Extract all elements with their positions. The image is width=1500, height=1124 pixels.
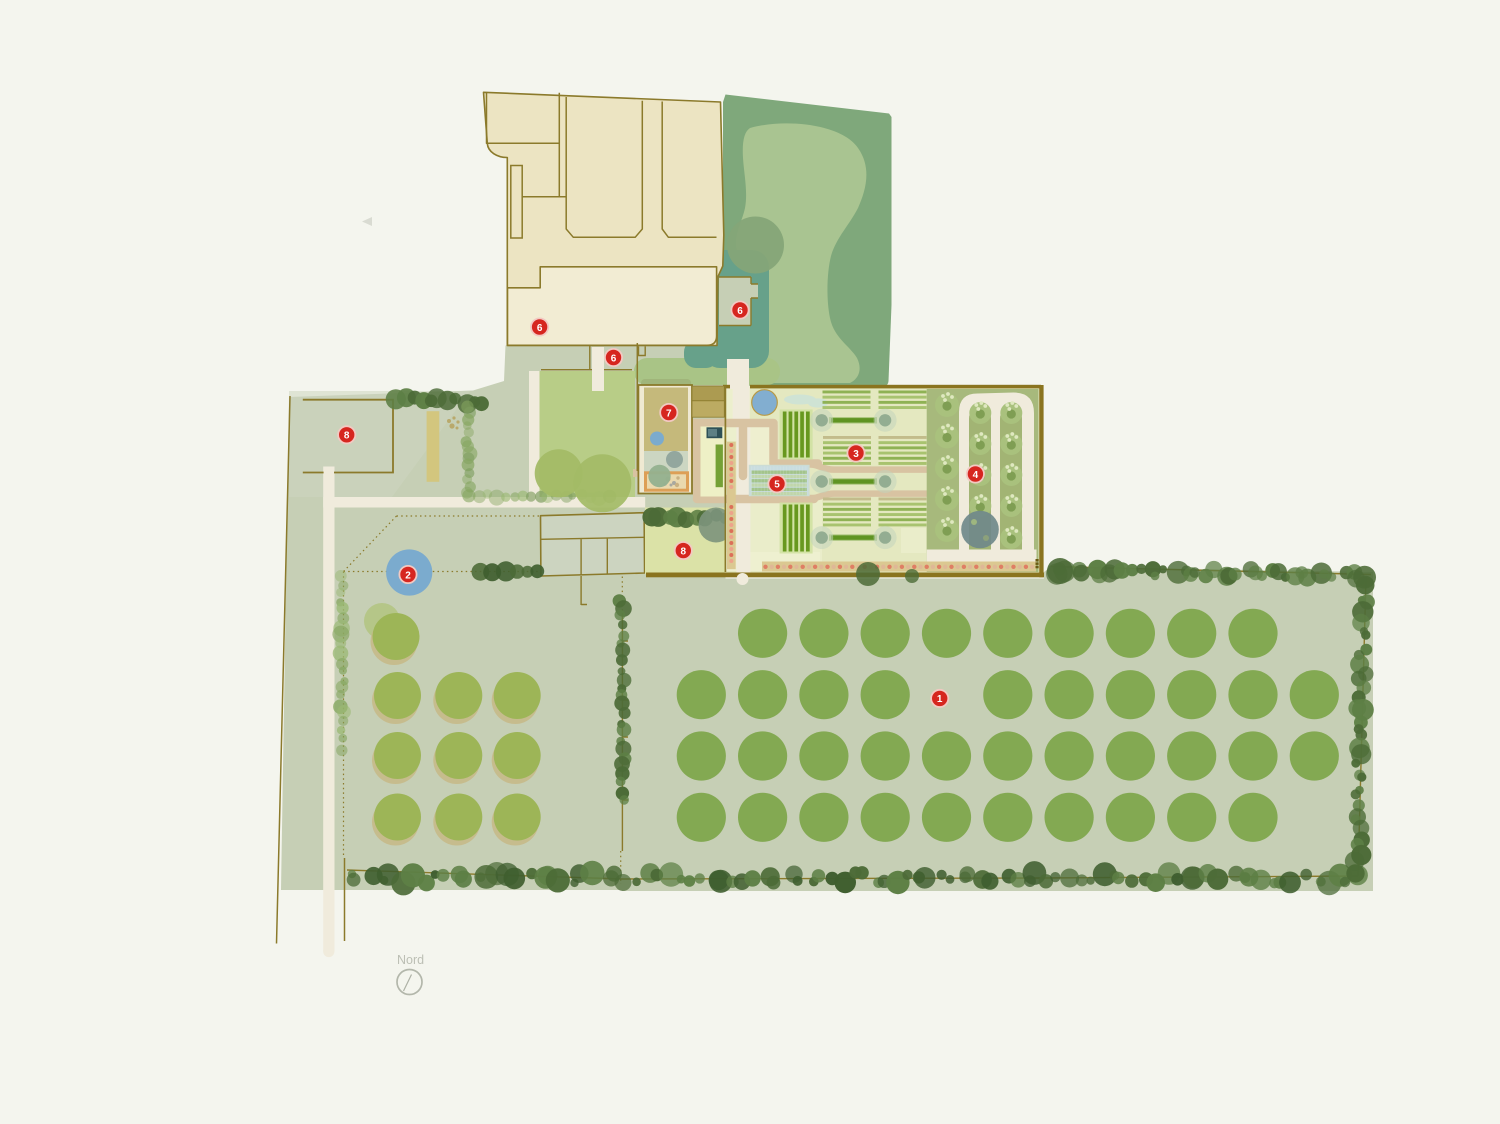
svg-text:2: 2 [405,570,411,581]
svg-text:4: 4 [973,470,979,481]
svg-text:6: 6 [737,306,743,317]
svg-text:7: 7 [666,408,672,419]
svg-text:1: 1 [937,694,943,705]
svg-text:6: 6 [537,323,543,334]
svg-text:5: 5 [774,480,780,491]
svg-text:6: 6 [611,353,617,364]
svg-text:3: 3 [853,449,859,460]
svg-text:8: 8 [681,546,687,557]
svg-text:Nord: Nord [397,953,424,967]
svg-text:8: 8 [344,431,350,442]
